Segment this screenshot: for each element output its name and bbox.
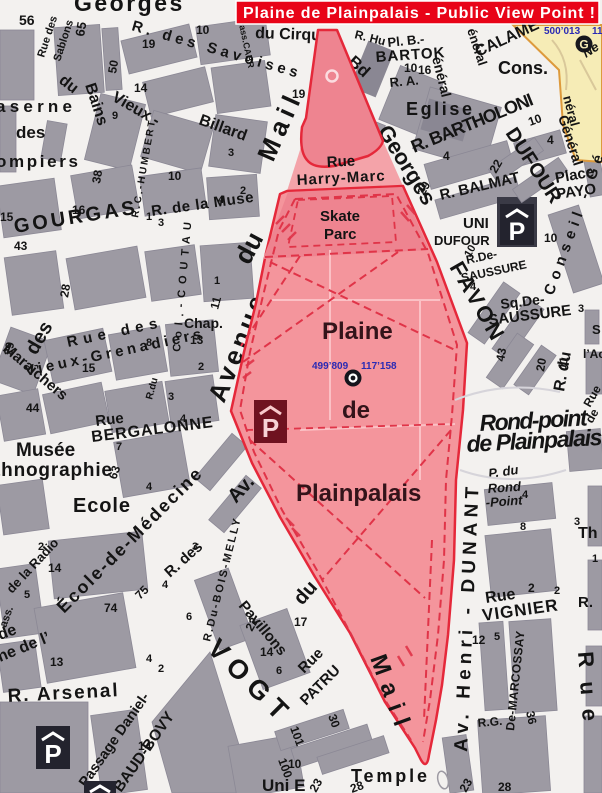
svg-text:thnographie: thnographie [0,460,112,481]
svg-text:R.: R. [578,594,593,611]
svg-text:1: 1 [214,275,220,287]
svg-text:1: 1 [146,211,152,223]
svg-text:16: 16 [418,63,432,77]
svg-text:de: de [342,397,370,424]
svg-text:4: 4 [218,194,225,206]
svg-text:15: 15 [0,210,14,224]
svg-text:R.G.: R.G. [477,714,503,730]
svg-text:499’809: 499’809 [312,361,349,372]
svg-text:12: 12 [472,633,486,647]
svg-text:74: 74 [104,601,118,615]
svg-text:2: 2 [198,361,204,373]
svg-text:2: 2 [240,185,246,197]
svg-text:6: 6 [186,611,192,623]
svg-text:4: 4 [547,133,554,147]
svg-text:44: 44 [26,401,40,415]
svg-text:14: 14 [138,739,152,753]
svg-text:Ecole: Ecole [73,495,130,517]
svg-text:8: 8 [520,521,526,533]
svg-text:2: 2 [158,663,164,675]
svg-text:P: P [509,218,526,246]
svg-text:13: 13 [50,655,64,669]
svg-text:2: 2 [554,585,560,597]
svg-text:50: 50 [105,59,121,75]
svg-text:10: 10 [544,231,558,245]
svg-text:P: P [44,739,61,769]
svg-text:Skate: Skate [320,208,360,225]
svg-text:4: 4 [443,149,450,163]
svg-text:5: 5 [24,589,30,601]
svg-text:28: 28 [57,283,73,299]
svg-text:Cons.: Cons. [498,58,548,78]
svg-text:19: 19 [292,87,306,101]
svg-text:4: 4 [470,281,477,293]
svg-text:17: 17 [294,615,308,629]
svg-text:10: 10 [196,23,210,37]
svg-text:4: 4 [162,579,169,591]
svg-text:9: 9 [112,110,118,122]
svg-text:10: 10 [288,757,302,771]
svg-text:43: 43 [493,347,509,363]
svg-text:DUFOUR: DUFOUR [434,233,490,248]
svg-text:l’Ac: l’Ac [583,347,602,361]
svg-text:19: 19 [142,37,156,51]
svg-text:3: 3 [578,303,584,315]
svg-text:29: 29 [1,341,17,357]
svg-text:S: S [592,322,601,337]
svg-text:28: 28 [498,780,512,793]
svg-text:14: 14 [260,645,274,659]
svg-text:4: 4 [522,489,529,501]
svg-text:2: 2 [38,541,44,553]
svg-text:3: 3 [168,391,174,403]
svg-text:UNI: UNI [463,215,489,232]
svg-text:7: 7 [116,441,122,453]
svg-text:10: 10 [168,169,182,183]
svg-text:43: 43 [14,239,28,253]
svg-text:20: 20 [533,357,549,373]
svg-text:4: 4 [180,413,187,425]
svg-text:6: 6 [276,665,282,677]
svg-text:15: 15 [82,361,96,375]
svg-text:500’013: 500’013 [544,26,581,37]
svg-text:Plainpalais: Plainpalais [296,480,421,507]
svg-text:3: 3 [228,147,234,159]
svg-text:5: 5 [494,631,500,643]
svg-text:14: 14 [134,81,148,95]
svg-text:117’158: 117’158 [361,361,397,372]
svg-text:11: 11 [592,26,602,37]
svg-text:4: 4 [146,653,153,665]
svg-text:10: 10 [404,61,418,75]
svg-text:Plaine: Plaine [322,318,393,345]
svg-text:2: 2 [528,581,535,595]
svg-text:4: 4 [146,481,153,493]
svg-text:Georges: Georges [74,0,185,16]
svg-text:des: des [16,123,45,142]
svg-text:8: 8 [146,337,152,349]
svg-text:Parc: Parc [324,226,357,243]
svg-text:Plaine de Plainpalais - Public: Plaine de Plainpalais - Public View Poin… [243,5,595,22]
svg-text:38: 38 [89,169,105,185]
svg-text:3: 3 [158,217,164,229]
svg-text:-Point: -Point [485,492,523,510]
svg-text:Musée: Musée [16,440,75,461]
svg-text:P: P [262,413,279,443]
svg-text:56: 56 [19,12,35,28]
svg-text:Th: Th [578,525,598,542]
svg-text:3: 3 [192,541,198,553]
svg-text:13: 13 [190,333,204,347]
svg-text:Chap.: Chap. [184,315,223,331]
svg-text:16: 16 [72,203,86,217]
svg-text:65: 65 [72,21,89,38]
svg-text:1: 1 [592,553,598,565]
svg-text:14: 14 [48,561,62,575]
svg-text:R. A.: R. A. [389,73,419,90]
svg-text:3: 3 [574,516,580,528]
